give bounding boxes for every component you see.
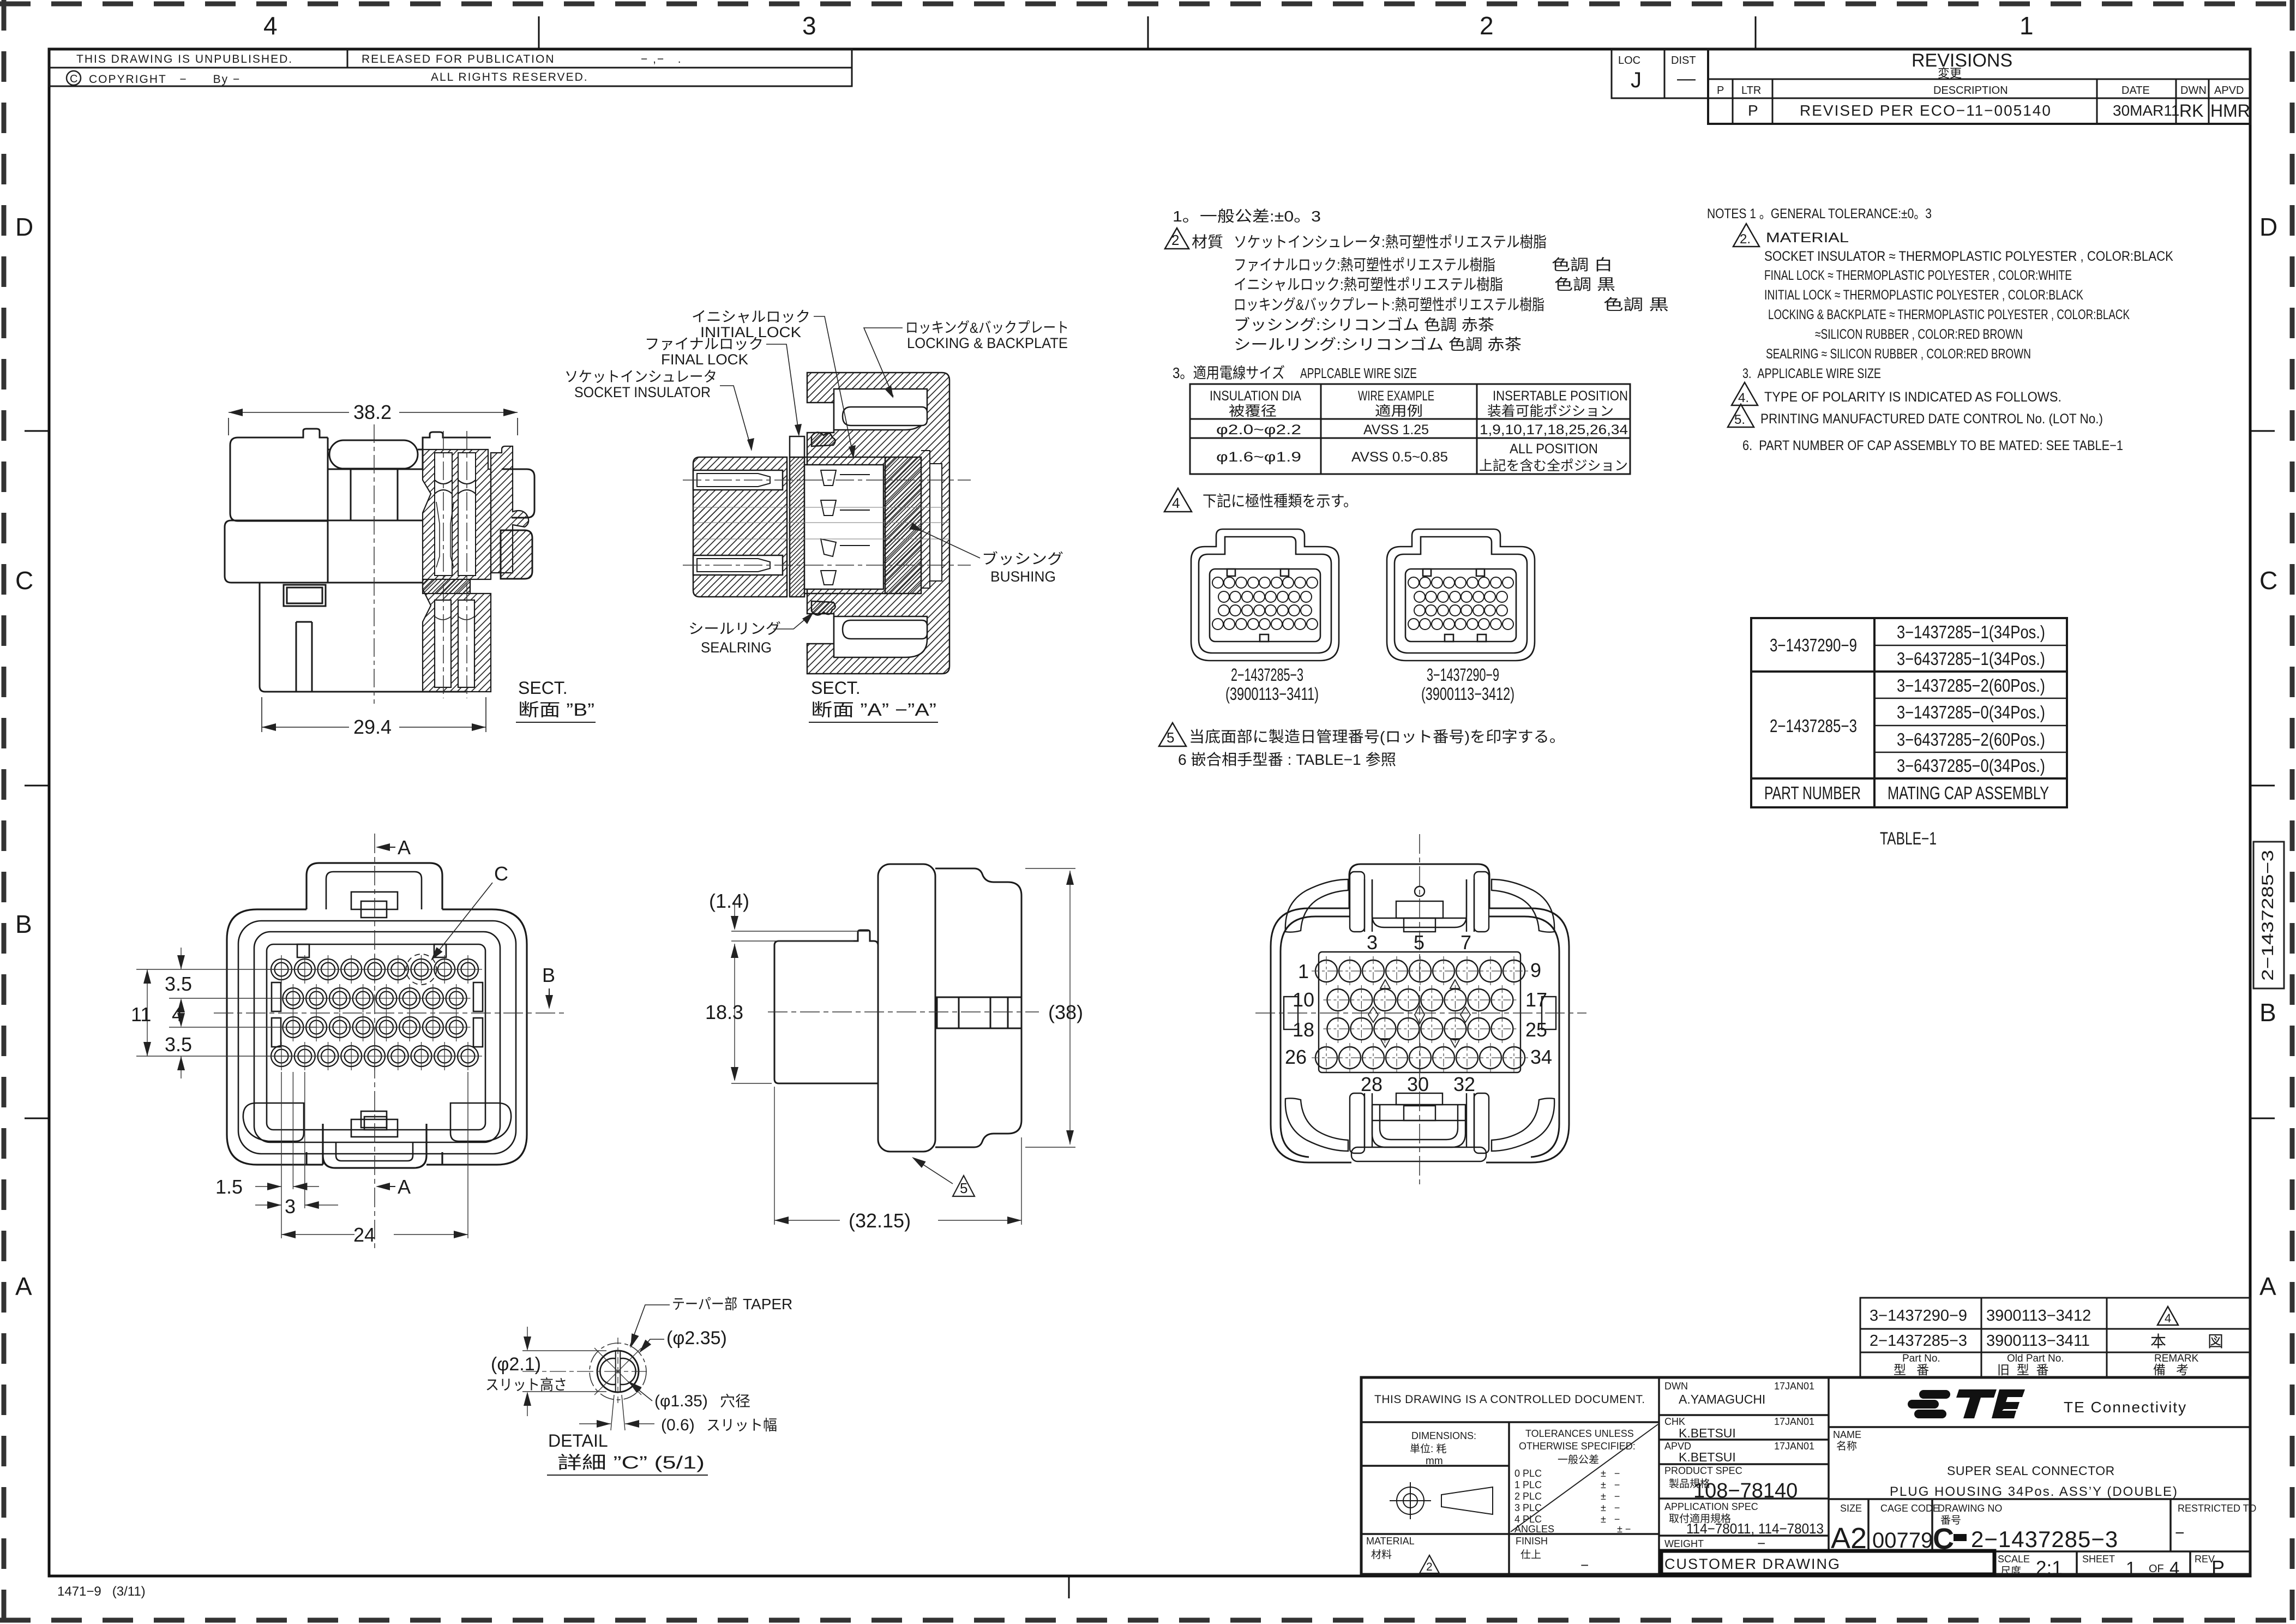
svg-text:本: 本	[2150, 1333, 2166, 1351]
svg-text:DATE: DATE	[2121, 85, 2150, 97]
svg-text:φ2.0~φ2.2: φ2.0~φ2.2	[1216, 422, 1301, 438]
svg-text:SECT.: SECT.	[811, 678, 861, 698]
svg-text:24: 24	[353, 1224, 375, 1246]
svg-text:型 番: 型 番	[1894, 1363, 1929, 1377]
svg-text:PRODUCT SPEC: PRODUCT SPEC	[1664, 1465, 1742, 1476]
svg-text:−: −	[2175, 1524, 2185, 1542]
svg-text:3.5: 3.5	[165, 973, 192, 995]
svg-text:4: 4	[172, 1003, 183, 1026]
svg-text:FINAL LOCK ≈ THERMOPLASTIC POL: FINAL LOCK ≈ THERMOPLASTIC POLYESTER , C…	[1764, 268, 2072, 283]
svg-text:3−1437285−0(34Pos.): 3−1437285−0(34Pos.)	[1897, 702, 2045, 722]
svg-text:0 PLC: 0 PLC	[1514, 1468, 1542, 1479]
svg-text:17JAN01: 17JAN01	[1774, 1381, 1814, 1392]
svg-text:色調 黒: 色調 黒	[1554, 276, 1615, 293]
svg-text:備 考: 備 考	[2153, 1363, 2189, 1377]
svg-text:25: 25	[1525, 1018, 1547, 1041]
svg-text:A: A	[15, 1272, 32, 1301]
svg-text:PLUG HOUSING 34Pos. ASS’Y: PLUG HOUSING 34Pos. ASS’Y (DOUBLE)	[1890, 1484, 2178, 1499]
svg-text:WEIGHT: WEIGHT	[1664, 1538, 1704, 1549]
svg-text:DWN: DWN	[1664, 1381, 1688, 1392]
svg-text:当底面部に製造日管理番号(ロット番号)を印字する。: 当底面部に製造日管理番号(ロット番号)を印字する。	[1189, 728, 1565, 745]
svg-text:COPYRIGHT − By −: COPYRIGHT − By −	[89, 73, 241, 86]
svg-text:DETAIL: DETAIL	[548, 1431, 608, 1451]
svg-text:DRAWING NO: DRAWING NO	[1938, 1503, 2002, 1514]
svg-text:REVISIONS: REVISIONS	[1912, 50, 2012, 71]
svg-text:9: 9	[1530, 959, 1541, 981]
svg-text:(3900113−3412): (3900113−3412)	[1421, 684, 1514, 704]
svg-text:2: 2	[1171, 232, 1179, 248]
svg-text:LOCKING & BACKPLATE ≈ THERMOPL: LOCKING & BACKPLATE ≈ THERMOPLASTIC POLY…	[1768, 307, 2130, 322]
svg-text:断面 ”A” −”A”: 断面 ”A” −”A”	[811, 700, 936, 720]
svg-text:上記を含む全ポジション: 上記を含む全ポジション	[1479, 458, 1628, 474]
svg-text:RELEASED FOR PUBLICATION: RELEASED FOR PUBLICATION	[362, 53, 555, 65]
svg-text:A2: A2	[1831, 1522, 1867, 1555]
svg-text:P: P	[2211, 1556, 2225, 1579]
svg-text:7: 7	[1460, 931, 1471, 954]
svg-text:下記に極性種類を示す。: 下記に極性種類を示す。	[1203, 493, 1357, 510]
svg-text:DIST: DIST	[1671, 55, 1696, 67]
svg-text:−: −	[1580, 1557, 1589, 1573]
svg-text:C: C	[1933, 1523, 1954, 1555]
svg-text:FINISH: FINISH	[1516, 1536, 1548, 1547]
svg-text:2−1437285−3: 2−1437285−3	[1231, 665, 1303, 685]
svg-text:2:1: 2:1	[2036, 1557, 2063, 1579]
svg-text:1。一般公差:±0。3: 1。一般公差:±0。3	[1173, 208, 1321, 225]
svg-text:ソケットインシュレータ:熱可塑性ポリエステル樹脂: ソケットインシュレータ:熱可塑性ポリエステル樹脂	[1234, 233, 1547, 250]
svg-text:A.YAMAGUCHI: A.YAMAGUCHI	[1679, 1392, 1765, 1406]
svg-text:3. APPLICABLE WIRE SIZE: 3. APPLICABLE WIRE SIZE	[1742, 366, 1881, 381]
svg-text:PRINTING MANUFACTURED DATE CON: PRINTING MANUFACTURED DATE CONTROL No. (…	[1760, 411, 2103, 427]
svg-text:LTR: LTR	[1741, 85, 1761, 97]
svg-text:± −: ± −	[1601, 1514, 1620, 1525]
svg-text:38.2: 38.2	[353, 401, 392, 423]
svg-text:17JAN01: 17JAN01	[1774, 1416, 1814, 1427]
svg-text:A: A	[2259, 1272, 2276, 1301]
svg-text:3: 3	[285, 1195, 296, 1218]
svg-text:色調 黒: 色調 黒	[1603, 296, 1669, 313]
svg-text:2−1437285−3: 2−1437285−3	[2259, 850, 2277, 981]
svg-text:ALL RIGHTS RESERVED.: ALL RIGHTS RESERVED.	[431, 71, 588, 83]
svg-text:P: P	[1717, 85, 1724, 97]
svg-text:ファイナルロック:熱可塑性ポリエステル樹脂: ファイナルロック:熱可塑性ポリエステル樹脂	[1234, 256, 1495, 273]
svg-text:1.5: 1.5	[215, 1176, 243, 1198]
svg-text:3900113−3412: 3900113−3412	[1986, 1307, 2091, 1325]
svg-text:B: B	[15, 910, 32, 938]
svg-text:DESCRIPTION: DESCRIPTION	[1933, 85, 2008, 97]
svg-text:CUSTOMER DRAWING: CUSTOMER DRAWING	[1664, 1556, 1841, 1572]
svg-text:仕上: 仕上	[1520, 1549, 1541, 1561]
svg-text:4.: 4.	[1738, 391, 1749, 405]
svg-text:DWN: DWN	[2180, 85, 2207, 97]
svg-text:TYPE OF POLARITY IS INDICATED: TYPE OF POLARITY IS INDICATED AS FOLLOWS…	[1764, 389, 2061, 405]
svg-text:(φ2.35): (φ2.35)	[666, 1328, 727, 1349]
svg-text:WIRE EXAMPLE: WIRE EXAMPLE	[1358, 388, 1434, 404]
svg-text:B: B	[542, 964, 555, 986]
svg-text:ロッキング&バックプレート: ロッキング&バックプレート	[905, 320, 1069, 336]
svg-text:A: A	[398, 1176, 411, 1198]
svg-text:INITIAL LOCK ≈ THERMOPLASTIC P: INITIAL LOCK ≈ THERMOPLASTIC POLYESTER ,…	[1764, 287, 2083, 303]
svg-text:(32.15): (32.15)	[849, 1209, 911, 1232]
svg-text:INSULATION DIA: INSULATION DIA	[1210, 388, 1301, 404]
svg-text:RESTRICTED TO: RESTRICTED TO	[2178, 1503, 2256, 1514]
svg-text:スリット幅: スリット幅	[706, 1417, 777, 1434]
svg-text:C: C	[15, 566, 33, 595]
svg-text:名称: 名称	[1836, 1440, 1857, 1452]
svg-text:APVD: APVD	[2214, 85, 2244, 97]
svg-text:3−1437285−2(60Pos.): 3−1437285−2(60Pos.)	[1897, 675, 2045, 696]
svg-text:18.3: 18.3	[705, 1001, 743, 1023]
svg-text:4: 4	[1172, 495, 1180, 511]
svg-text:SEALRING: SEALRING	[701, 639, 772, 656]
svg-text:3 PLC: 3 PLC	[1514, 1502, 1542, 1513]
svg-text:29.4: 29.4	[353, 716, 392, 738]
svg-text:BUSHING: BUSHING	[990, 568, 1056, 585]
svg-text:NAME: NAME	[1833, 1429, 1861, 1440]
svg-text:ファイナルロック: ファイナルロック	[645, 336, 764, 352]
svg-text:1: 1	[1298, 960, 1309, 982]
svg-text:34: 34	[1530, 1046, 1552, 1068]
svg-text:LOC: LOC	[1618, 55, 1640, 67]
svg-text:SOCKET INSULATOR: SOCKET INSULATOR	[574, 384, 711, 400]
svg-text:3。適用電線サイズ: 3。適用電線サイズ	[1173, 364, 1285, 381]
svg-text:適用例: 適用例	[1375, 404, 1423, 419]
svg-text:C: C	[70, 73, 77, 85]
svg-text:AVSS 1.25: AVSS 1.25	[1363, 422, 1429, 438]
svg-text:(3900113−3411): (3900113−3411)	[1225, 684, 1319, 704]
svg-text:SEALRING ≈ SILICON RUBBER , CO: SEALRING ≈ SILICON RUBBER , COLOR:RED BR…	[1766, 346, 2031, 362]
svg-text:MATERIAL: MATERIAL	[1766, 230, 1849, 245]
svg-text:2−1437285−3: 2−1437285−3	[1770, 716, 1857, 736]
svg-text:30: 30	[1407, 1073, 1429, 1095]
svg-text:SOCKET INSULATOR ≈ THERMOPLAST: SOCKET INSULATOR ≈ THERMOPLASTIC POLYEST…	[1764, 249, 2173, 264]
svg-text:32: 32	[1453, 1073, 1475, 1095]
svg-text:± −: ± −	[1617, 1524, 1631, 1535]
svg-text:00779: 00779	[1872, 1529, 1933, 1553]
svg-text:SUPER SEAL CONNECTOR: SUPER SEAL CONNECTOR	[1947, 1464, 2115, 1478]
svg-text:3−1437285−1(34Pos.): 3−1437285−1(34Pos.)	[1897, 622, 2045, 642]
svg-text:ブッシング: ブッシング	[982, 551, 1063, 567]
svg-text:ロッキング&バックプレート:熱可塑性ポリエステル樹脂: ロッキング&バックプレート:熱可塑性ポリエステル樹脂	[1234, 296, 1544, 313]
svg-text:ソケットインシュレータ: ソケットインシュレータ	[564, 369, 717, 385]
svg-text:材質: 材質	[1192, 233, 1223, 250]
svg-text:4 PLC: 4 PLC	[1514, 1514, 1542, 1525]
svg-text:B: B	[2259, 998, 2276, 1027]
svg-text:1 PLC: 1 PLC	[1514, 1479, 1542, 1490]
svg-text:2−1437285−3: 2−1437285−3	[1870, 1332, 1967, 1350]
svg-text:D: D	[2259, 213, 2277, 241]
svg-text:K.BETSUI: K.BETSUI	[1679, 1426, 1736, 1440]
svg-text:断面 ”B”: 断面 ”B”	[518, 700, 594, 720]
svg-text:3−6437285−1(34Pos.): 3−6437285−1(34Pos.)	[1897, 649, 2045, 669]
svg-text:装着可能ポジション: 装着可能ポジション	[1487, 404, 1614, 419]
svg-text:PART NUMBER: PART NUMBER	[1764, 783, 1861, 803]
svg-text:± −: ± −	[1601, 1502, 1620, 1513]
svg-text:(38): (38)	[1048, 1001, 1083, 1023]
svg-text:K.BETSUI: K.BETSUI	[1679, 1450, 1736, 1464]
svg-text:5: 5	[1167, 729, 1174, 746]
svg-text:J: J	[1631, 68, 1642, 92]
svg-text:17: 17	[1525, 988, 1547, 1011]
svg-text:(1.4): (1.4)	[709, 890, 749, 912]
svg-text:2 PLC: 2 PLC	[1514, 1491, 1542, 1502]
svg-text:SIZE: SIZE	[1840, 1503, 1862, 1514]
svg-text:LOCKING & BACKPLATE: LOCKING & BACKPLATE	[907, 335, 1068, 351]
svg-text:11: 11	[131, 1003, 151, 1026]
svg-text:RK: RK	[2179, 101, 2203, 121]
svg-text:−: −	[1757, 1535, 1765, 1551]
svg-text:± −: ± −	[1601, 1479, 1620, 1490]
svg-text:3: 3	[1367, 931, 1378, 954]
svg-text:変更: 変更	[1938, 67, 1962, 80]
svg-text:26: 26	[1285, 1046, 1307, 1068]
svg-text:2: 2	[1426, 1561, 1433, 1573]
svg-text:108−78140: 108−78140	[1693, 1479, 1798, 1502]
svg-text:4: 4	[263, 11, 278, 40]
svg-text:A: A	[398, 836, 411, 859]
svg-text:3−6437285−0(34Pos.): 3−6437285−0(34Pos.)	[1897, 756, 2045, 776]
svg-text:—: —	[1677, 68, 1696, 89]
svg-text:5: 5	[1414, 931, 1425, 954]
svg-text:TE Connectivity: TE Connectivity	[2064, 1399, 2187, 1416]
svg-text:− ,− .: − ,− .	[641, 53, 682, 65]
svg-text:ANGLES: ANGLES	[1514, 1524, 1554, 1535]
svg-text:OF: OF	[2149, 1563, 2164, 1575]
svg-text:APPLICATION SPEC: APPLICATION SPEC	[1664, 1501, 1758, 1512]
svg-text:シールリング:シリコンゴム 色調 赤茶: シールリング:シリコンゴム 色調 赤茶	[1234, 336, 1522, 353]
svg-text:スリット高さ: スリット高さ	[485, 1377, 567, 1393]
svg-text:APPLCABLE WIRE SIZE: APPLCABLE WIRE SIZE	[1300, 365, 1417, 381]
svg-text:1: 1	[2126, 1558, 2136, 1578]
svg-text:THIS DRAWING IS A CONTROLL: THIS DRAWING IS A CONTROLLED DOCUMENT.	[1374, 1393, 1645, 1406]
svg-text:旧 型 番: 旧 型 番	[1997, 1363, 2049, 1377]
svg-text:シールリング: シールリング	[688, 621, 781, 637]
svg-text:色調 白: 色調 白	[1552, 256, 1613, 273]
svg-text:被覆径: 被覆径	[1229, 404, 1277, 419]
svg-text:ブッシング:シリコンゴム 色調 赤茶: ブッシング:シリコンゴム 色調 赤茶	[1234, 316, 1494, 333]
svg-text:± −: ± −	[1601, 1491, 1620, 1502]
svg-text:イニシャルロック: イニシャルロック	[692, 309, 810, 325]
svg-text:mm: mm	[1426, 1455, 1443, 1467]
svg-text:(φ1.35): (φ1.35)	[654, 1392, 708, 1410]
svg-text:3−1437290−9: 3−1437290−9	[1770, 635, 1857, 655]
svg-text:6 嵌合相手型番 : TABLE−1 参照: 6 嵌合相手型番 : TABLE−1 参照	[1178, 751, 1396, 768]
svg-text:NOTES 1 。GENERAL TOLERANCE:±0。: NOTES 1 。GENERAL TOLERANCE:±0。3	[1707, 206, 1932, 221]
svg-text:SHEET: SHEET	[2082, 1554, 2115, 1565]
svg-text:HMR: HMR	[2210, 101, 2250, 121]
svg-text:詳細 ”C” (5/1): 詳細 ”C” (5/1)	[557, 1453, 705, 1472]
svg-text:3−1437290−9: 3−1437290−9	[1870, 1307, 1967, 1325]
svg-text:CAGE CODE: CAGE CODE	[1880, 1503, 1939, 1514]
svg-text:材料: 材料	[1371, 1549, 1392, 1561]
svg-text:REVISED PER ECO−11−005140: REVISED PER ECO−11−005140	[1800, 102, 2052, 119]
svg-text:TABLE−1: TABLE−1	[1880, 829, 1937, 848]
svg-text:FINAL LOCK: FINAL LOCK	[661, 351, 748, 368]
svg-text:2: 2	[1480, 11, 1494, 40]
svg-text:± −: ± −	[1601, 1468, 1620, 1479]
svg-text:MATERIAL: MATERIAL	[1366, 1536, 1415, 1547]
svg-text:SECT.: SECT.	[518, 678, 568, 698]
svg-text:穴径: 穴径	[720, 1393, 750, 1410]
svg-text:1: 1	[2019, 11, 2034, 40]
svg-text:イニシャルロック:熱可塑性ポリエステル樹脂: イニシャルロック:熱可塑性ポリエステル樹脂	[1234, 276, 1503, 293]
svg-text:P: P	[1748, 102, 1758, 119]
svg-text:30MAR11: 30MAR11	[2113, 102, 2179, 119]
svg-text:3.5: 3.5	[165, 1033, 192, 1056]
svg-text:AVSS 0.5~0.85: AVSS 0.5~0.85	[1351, 450, 1448, 465]
svg-text:4: 4	[2169, 1558, 2179, 1578]
svg-text:CHK: CHK	[1664, 1416, 1685, 1427]
svg-text:3−1437290−9: 3−1437290−9	[1427, 665, 1499, 685]
svg-text:≈SILICON RUBBER , COLOR:RED BR: ≈SILICON RUBBER , COLOR:RED BROWN	[1815, 327, 2023, 342]
svg-text:(0.6): (0.6)	[661, 1416, 695, 1434]
svg-text:尺度: 尺度	[2000, 1565, 2021, 1577]
svg-text:4: 4	[2165, 1311, 2171, 1325]
svg-text:3: 3	[802, 11, 816, 40]
svg-text:THIS DRAWING IS UNPUBLISHED: THIS DRAWING IS UNPUBLISHED.	[76, 53, 293, 65]
svg-text:3900113−3411: 3900113−3411	[1986, 1332, 2090, 1350]
svg-text:DIMENSIONS:: DIMENSIONS:	[1411, 1430, 1476, 1441]
svg-text:1471−9 (3/11): 1471−9 (3/11)	[57, 1584, 146, 1599]
svg-text:図: 図	[2208, 1333, 2223, 1351]
svg-text:(φ2.1): (φ2.1)	[491, 1354, 541, 1375]
svg-text:5: 5	[960, 1180, 967, 1196]
svg-text:10: 10	[1293, 988, 1314, 1011]
svg-text:単位: 粍: 単位: 粍	[1410, 1443, 1447, 1455]
svg-text:INSERTABLE POSITION: INSERTABLE POSITION	[1493, 388, 1628, 404]
svg-text:2−1437285−3: 2−1437285−3	[1971, 1526, 2118, 1552]
svg-text:114−78011, 114−78013: 114−78011, 114−78013	[1686, 1520, 1824, 1537]
svg-text:φ1.6~φ1.9: φ1.6~φ1.9	[1216, 450, 1301, 465]
svg-text:6. PART NUMBER OF CAP ASSEMBL: 6. PART NUMBER OF CAP ASSEMBLY TO BE MAT…	[1742, 438, 2123, 453]
svg-text:OTHERWISE SPECIFIED:: OTHERWISE SPECIFIED:	[1519, 1441, 1636, 1452]
svg-text:TOLERANCES UNLESS: TOLERANCES UNLESS	[1525, 1428, 1634, 1439]
svg-text:18: 18	[1293, 1018, 1314, 1041]
svg-text:C: C	[494, 862, 508, 885]
svg-text:ALL POSITION: ALL POSITION	[1510, 441, 1598, 457]
svg-text:2.: 2.	[1740, 232, 1751, 247]
svg-text:17JAN01: 17JAN01	[1774, 1441, 1814, 1452]
svg-text:TAPER: TAPER	[743, 1296, 792, 1313]
svg-text:1,9,10,17,18,25,26,34: 1,9,10,17,18,25,26,34	[1480, 422, 1628, 438]
svg-text:3−6437285−2(60Pos.): 3−6437285−2(60Pos.)	[1897, 729, 2045, 750]
svg-text:MATING CAP ASSEMBLY: MATING CAP ASSEMBLY	[1888, 783, 2049, 803]
svg-text:テーパー部: テーパー部	[672, 1296, 737, 1313]
svg-text:5.: 5.	[1734, 412, 1745, 427]
svg-text:28: 28	[1361, 1073, 1383, 1095]
svg-text:C: C	[2259, 566, 2277, 595]
svg-text:SCALE: SCALE	[1998, 1554, 2030, 1565]
svg-text:D: D	[15, 213, 33, 241]
svg-text:一般公差: 一般公差	[1558, 1454, 1599, 1466]
